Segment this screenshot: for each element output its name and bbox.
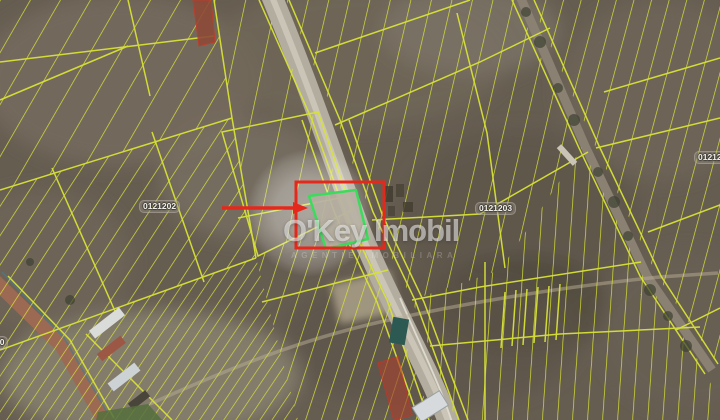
farm-structure [403, 202, 413, 212]
farm-structure [396, 184, 404, 197]
map-canvas[interactable] [0, 0, 720, 420]
farm-structure [388, 206, 395, 216]
map-viewport[interactable]: O'Key Imobil AGENTIE IMOBILIARA 0121202 … [0, 0, 720, 420]
